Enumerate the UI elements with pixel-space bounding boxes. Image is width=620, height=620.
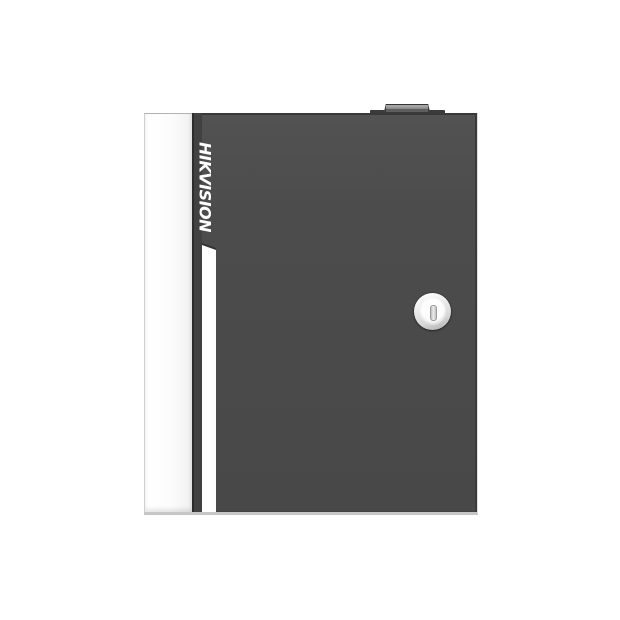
cam-lock bbox=[414, 293, 451, 330]
brand-logo-vertical: HIKVISION bbox=[195, 138, 215, 236]
cam-lock-face bbox=[419, 298, 446, 325]
accent-stripe bbox=[202, 245, 216, 512]
enclosure-box: HIKVISION bbox=[144, 113, 478, 515]
product-photo-canvas: HIKVISION bbox=[0, 0, 620, 620]
enclosure-door: HIKVISION bbox=[192, 113, 477, 512]
top-knob-cap bbox=[384, 104, 430, 112]
keyhole-icon bbox=[430, 305, 437, 321]
enclosure-side-panel bbox=[144, 113, 192, 512]
